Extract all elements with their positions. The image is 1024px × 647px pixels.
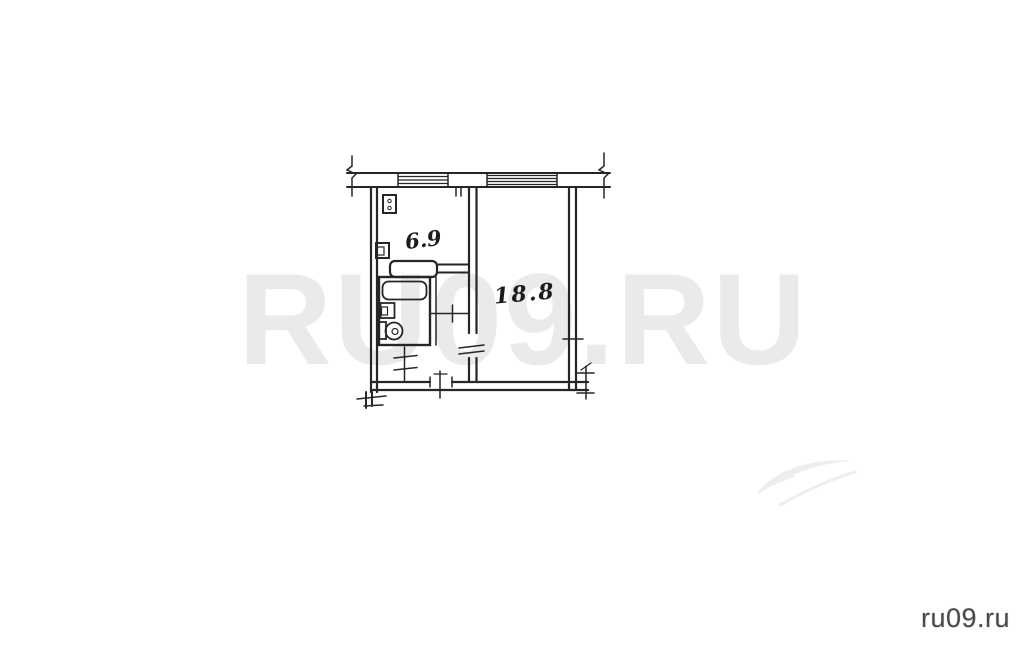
floor-plan-drawing [0,0,1024,647]
scanned-floor-plan-page: RU09.RU [0,0,1024,647]
bathtub-icon [383,282,427,300]
entrance-door-mark [434,371,447,398]
hall-door-mark [394,347,417,382]
toilet-icon [379,322,403,340]
stove-icon [383,195,396,213]
kitchen-area-label: 6.9 [404,225,443,254]
site-logo-text: ru09.ru [921,603,1010,634]
sink-icon [381,303,395,318]
wall-break-right [599,153,608,198]
bathroom-block [379,277,436,345]
window-band [347,153,610,198]
scan-noise [0,4,990,641]
wall-break-left [347,156,356,196]
living-room-area-label: 18.8 [493,278,557,309]
partition-wall [390,261,437,277]
swoosh-watermark-icon [757,460,855,505]
